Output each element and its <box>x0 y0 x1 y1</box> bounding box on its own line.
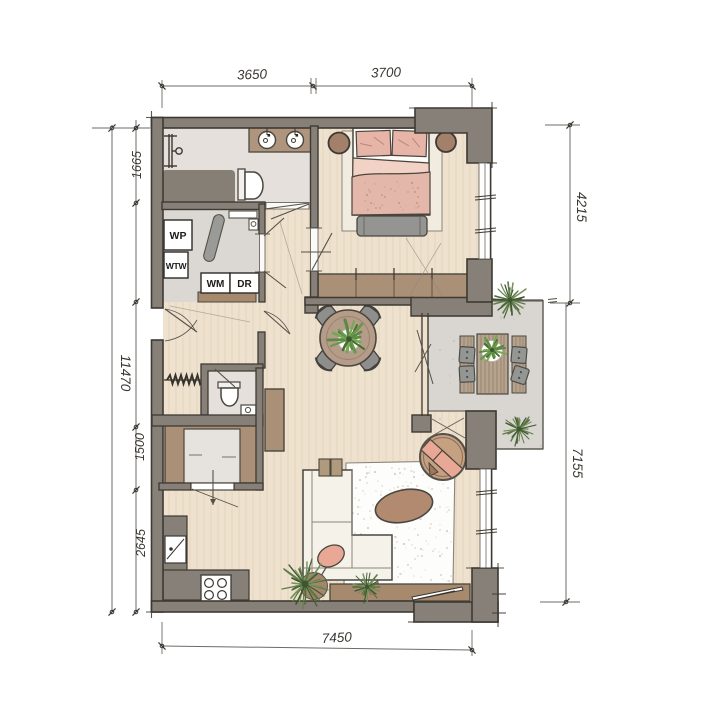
svg-text:1500: 1500 <box>133 433 147 461</box>
svg-text:3700: 3700 <box>371 64 402 80</box>
svg-text:DR: DR <box>237 279 252 290</box>
svg-text:11470: 11470 <box>118 355 133 392</box>
svg-text:WP: WP <box>170 230 187 242</box>
svg-text:WM: WM <box>207 279 225 290</box>
svg-text:1665: 1665 <box>130 151 144 179</box>
svg-text:2645: 2645 <box>134 529 148 558</box>
svg-text:WTW: WTW <box>166 261 188 271</box>
svg-text:7450: 7450 <box>321 629 352 646</box>
svg-text:7155: 7155 <box>570 448 585 479</box>
svg-text:4215: 4215 <box>574 192 589 223</box>
svg-text:3650: 3650 <box>237 66 268 82</box>
